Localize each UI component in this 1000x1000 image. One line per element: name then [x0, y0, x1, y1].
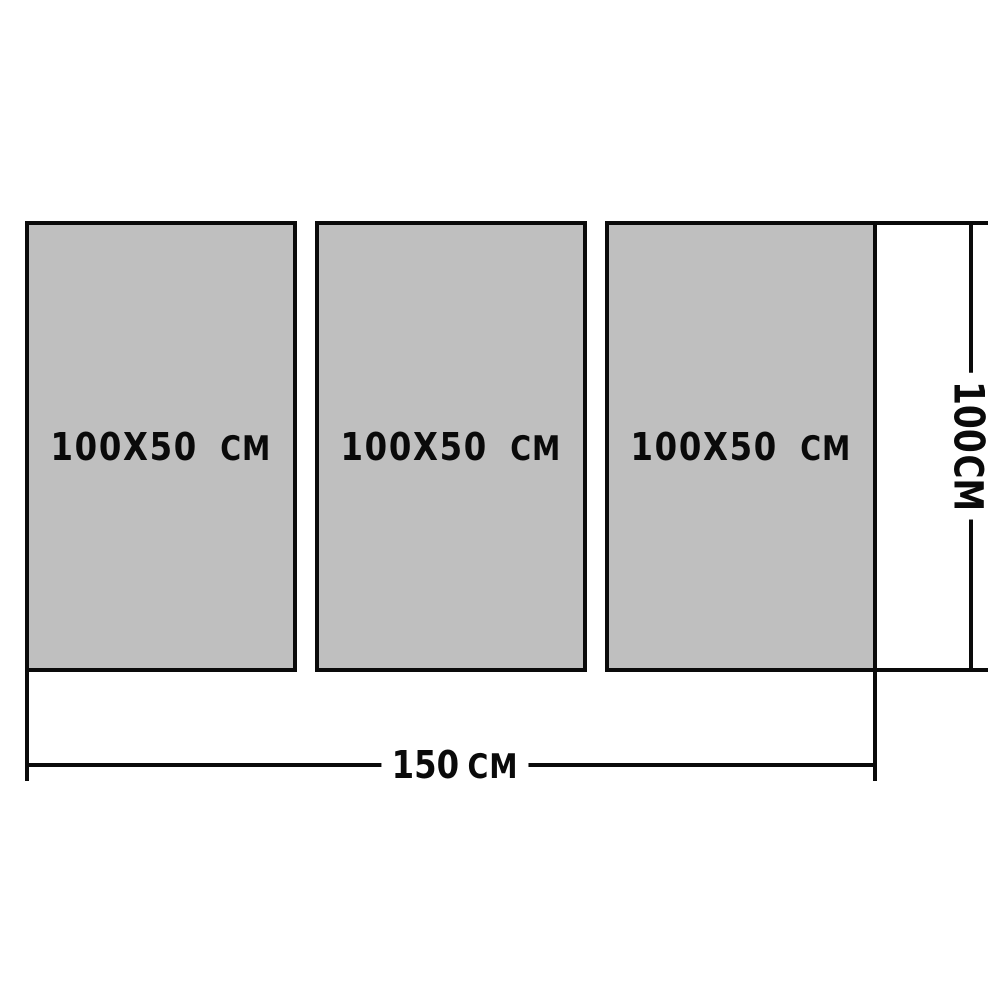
width-value-text: 150 [392, 743, 459, 787]
panel-3: 100X50 CM [605, 221, 877, 672]
panel-1-size-text: 100X50 [51, 425, 198, 469]
panel-1-label: 100X50 CM [51, 428, 272, 466]
panel-3-size-text: 100X50 [631, 425, 778, 469]
panel-1: 100X50 CM [25, 221, 297, 672]
panel-3-unit-text: CM [800, 429, 851, 468]
panel-1-unit-text: CM [220, 429, 271, 468]
width-unit-text: CM [468, 747, 519, 786]
panel-3-label: 100X50 CM [631, 428, 852, 466]
panel-2: 100X50 CM [315, 221, 587, 672]
height-unit-text: CM [944, 454, 990, 511]
height-dimension-label: 100CM [944, 373, 993, 519]
panel-2-size-text: 100X50 [341, 425, 488, 469]
panel-2-label: 100X50 CM [341, 428, 562, 466]
width-dimension-label: 150CM [381, 742, 528, 788]
panel-2-unit-text: CM [510, 429, 561, 468]
size-diagram: 100X50 CM 100X50 CM 100X50 CM 100CM 150C… [0, 0, 1000, 1000]
height-value-text: 100 [944, 381, 993, 453]
